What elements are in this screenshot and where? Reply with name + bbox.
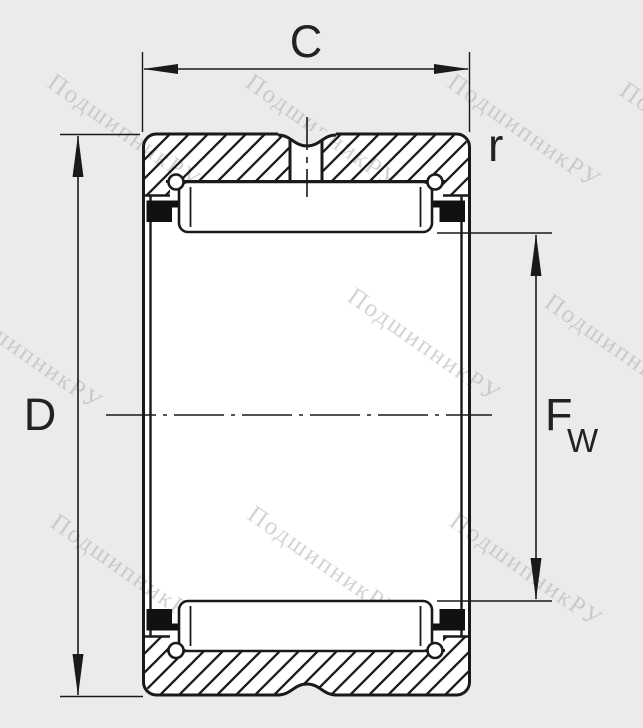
dim-label-d: D bbox=[24, 389, 57, 440]
bearing-cross-section-drawing: ПодшипникРУ ПодшипникРУ ПодшипникРУ Подш… bbox=[0, 0, 643, 728]
seal-bottom-left bbox=[147, 609, 173, 631]
cage-pin bbox=[428, 643, 443, 658]
seal-top-right-step bbox=[433, 201, 440, 208]
cage-pin bbox=[169, 175, 184, 190]
seal-top-left bbox=[147, 201, 173, 223]
dim-label-c: C bbox=[290, 16, 323, 67]
roller-row-bottom bbox=[179, 601, 432, 651]
roller-row-top bbox=[179, 182, 432, 232]
seal-bottom-right bbox=[440, 609, 466, 631]
cage-pin bbox=[169, 643, 184, 658]
dim-label-r: r bbox=[488, 119, 503, 171]
seal-bottom-right-step bbox=[433, 624, 440, 631]
bearing-drawing-page: ПодшипникРУ ПодшипникРУ ПодшипникРУ Подш… bbox=[0, 0, 643, 728]
dim-label-fw-sub: W bbox=[567, 422, 599, 459]
cage-pin bbox=[428, 175, 443, 190]
seal-top-right bbox=[440, 201, 466, 223]
